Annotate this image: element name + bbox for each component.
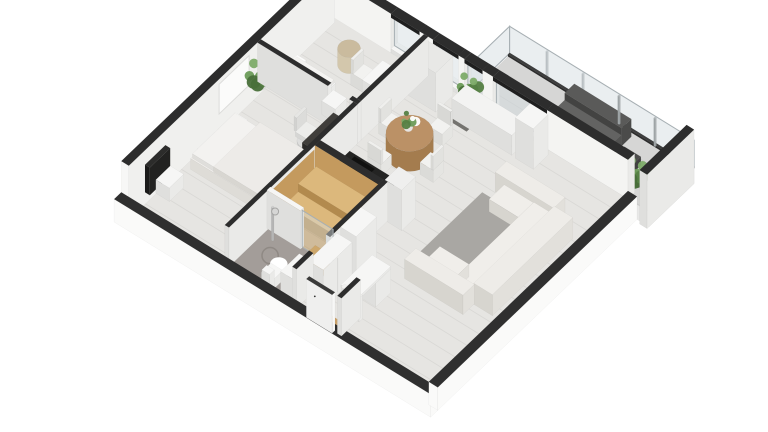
floor-plan-stage <box>0 0 768 432</box>
living-tall-cabinet <box>515 103 548 169</box>
entry-door-handle <box>314 296 316 298</box>
railing-post <box>654 117 657 147</box>
kitchen-tall-cabinet <box>385 167 416 231</box>
shower-head <box>272 208 279 215</box>
railing-post <box>618 95 621 125</box>
floor-plan-3d-render <box>0 0 768 432</box>
